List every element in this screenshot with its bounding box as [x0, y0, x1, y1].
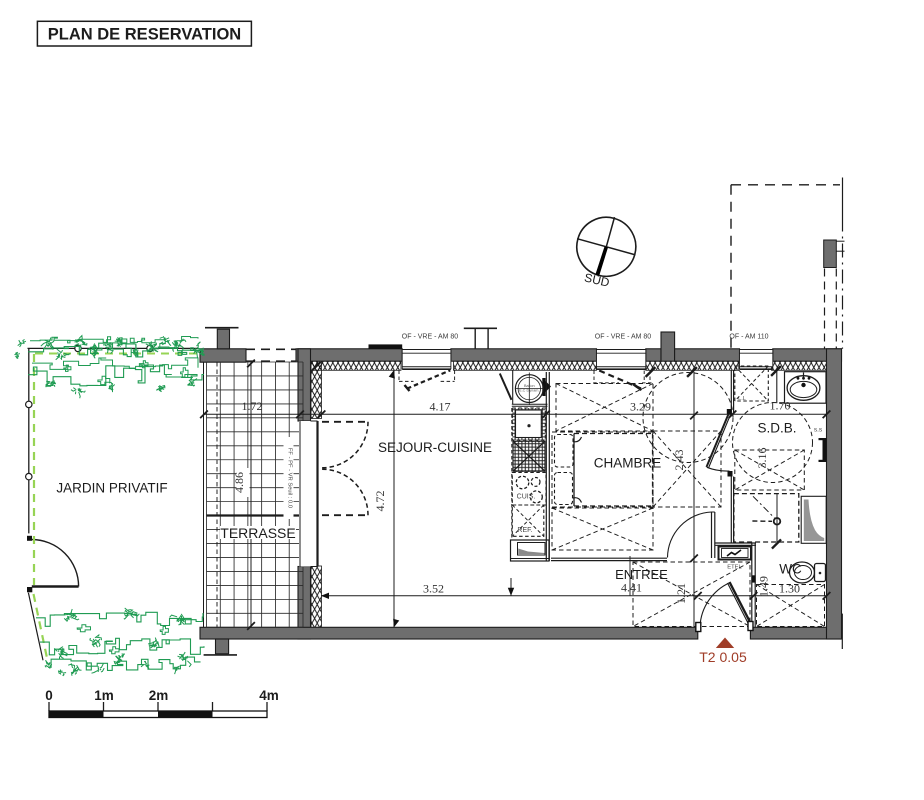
svg-text:4.72: 4.72 — [373, 491, 387, 512]
svg-text:1.21: 1.21 — [674, 583, 688, 604]
svg-text:FF - PF - VR Seuil : 0.0: FF - PF - VR Seuil : 0.0 — [287, 448, 293, 508]
svg-text:CUIS.: CUIS. — [517, 494, 536, 501]
svg-text:WC: WC — [779, 562, 802, 577]
svg-text:1.70: 1.70 — [770, 399, 791, 413]
svg-text:0: 0 — [45, 688, 53, 703]
svg-text:1.49: 1.49 — [757, 576, 771, 597]
svg-text:OF - VRE - AM 80: OF - VRE - AM 80 — [595, 334, 652, 341]
svg-text:3.52: 3.52 — [423, 582, 444, 596]
svg-text:E.C Dynam.: E.C Dynam. — [519, 389, 539, 393]
svg-text:1m: 1m — [94, 688, 114, 703]
svg-text:OF - VRE - AM 80: OF - VRE - AM 80 — [402, 334, 459, 341]
svg-text:2.43: 2.43 — [672, 450, 686, 471]
svg-text:2m: 2m — [149, 688, 169, 703]
svg-text:3.16: 3.16 — [755, 448, 769, 469]
svg-text:4.86: 4.86 — [232, 472, 246, 493]
svg-text:4.17: 4.17 — [430, 400, 451, 414]
svg-text:PLAN DE RESERVATION: PLAN DE RESERVATION — [48, 26, 241, 44]
svg-text:SEJOUR-CUISINE: SEJOUR-CUISINE — [378, 440, 492, 455]
svg-text:CHAMBRE: CHAMBRE — [594, 456, 662, 471]
svg-text:s.s: s.s — [814, 427, 823, 434]
svg-text:ETEL: ETEL — [727, 565, 742, 571]
svg-text:1.30: 1.30 — [779, 582, 800, 596]
svg-text:4m: 4m — [259, 688, 279, 703]
svg-text:Ballon: Ballon — [524, 384, 535, 388]
svg-text:OF - AM 110: OF - AM 110 — [729, 334, 768, 341]
svg-text:TERRASSE: TERRASSE — [220, 525, 295, 541]
svg-text:3.29: 3.29 — [630, 400, 651, 414]
svg-text:4.41: 4.41 — [621, 581, 642, 595]
svg-text:1.72: 1.72 — [242, 399, 263, 413]
svg-text:S.D.B.: S.D.B. — [757, 421, 796, 436]
svg-text:T2 0.05: T2 0.05 — [699, 649, 747, 665]
svg-text:L.L: L.L — [738, 396, 746, 402]
svg-text:REF.: REF. — [517, 527, 532, 534]
svg-text:JARDIN PRIVATIF: JARDIN PRIVATIF — [56, 481, 167, 496]
